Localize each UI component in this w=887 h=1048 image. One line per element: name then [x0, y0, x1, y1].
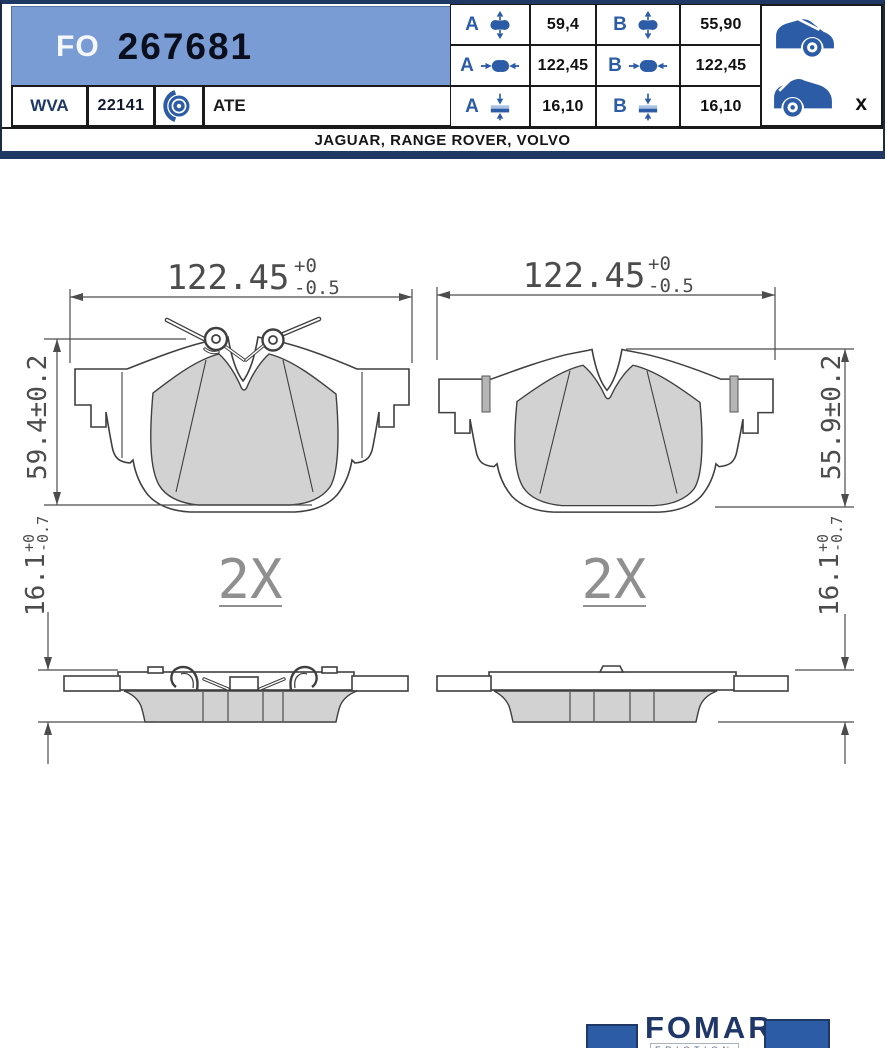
left-width-value: 122.45: [167, 258, 290, 298]
right-pad-right-abutment-strip: [730, 376, 738, 412]
left-width-tol-plus: +0: [294, 255, 317, 277]
technical-drawing: 2X 2X 122.45 +0 -0.5 59.4±0.2: [0, 0, 887, 880]
logo-right-bar: [764, 1019, 830, 1048]
left-width-dimension: 122.45 +0 -0.5: [70, 255, 412, 363]
fomar-logo: FOMAR FRICTION: [586, 1012, 846, 1048]
left-pad-side-view: [64, 667, 408, 722]
logo-brand-text: FOMAR: [645, 1010, 774, 1046]
right-height-value: 55.9±0.2: [817, 355, 847, 480]
logo-sub-brand-text: FRICTION: [650, 1043, 739, 1048]
right-pad-front-view: [439, 349, 773, 512]
right-pad-side-view: [437, 666, 788, 722]
right-width-tol-plus: +0: [648, 253, 671, 275]
right-width-dimension: 122.45 +0 -0.5: [437, 253, 775, 360]
left-thickness-dimension: 16.1 +0 -0.7: [20, 516, 155, 764]
left-height-value: 59.4±0.2: [23, 355, 53, 480]
left-width-tol-minus: -0.5: [294, 277, 340, 299]
right-width-tol-minus: -0.5: [648, 275, 694, 297]
right-thickness-value: 16.1: [815, 553, 845, 616]
right-thickness-dimension: 16.1 +0 -0.7: [718, 516, 854, 764]
right-thickness-tol-minus: -0.7: [828, 516, 846, 552]
left-thickness-value: 16.1: [21, 553, 51, 616]
left-quantity-label: 2X: [217, 548, 283, 611]
logo-left-bar: [586, 1024, 638, 1048]
right-width-value: 122.45: [523, 256, 646, 296]
right-quantity-label: 2X: [581, 548, 647, 611]
right-pad-left-abutment-strip: [482, 376, 490, 412]
catalog-page: FO 267681 WVA 22141 ATE A 59,4: [0, 0, 887, 1048]
left-thickness-tol-minus: -0.7: [34, 516, 52, 552]
left-pad-front-view: [75, 319, 409, 512]
